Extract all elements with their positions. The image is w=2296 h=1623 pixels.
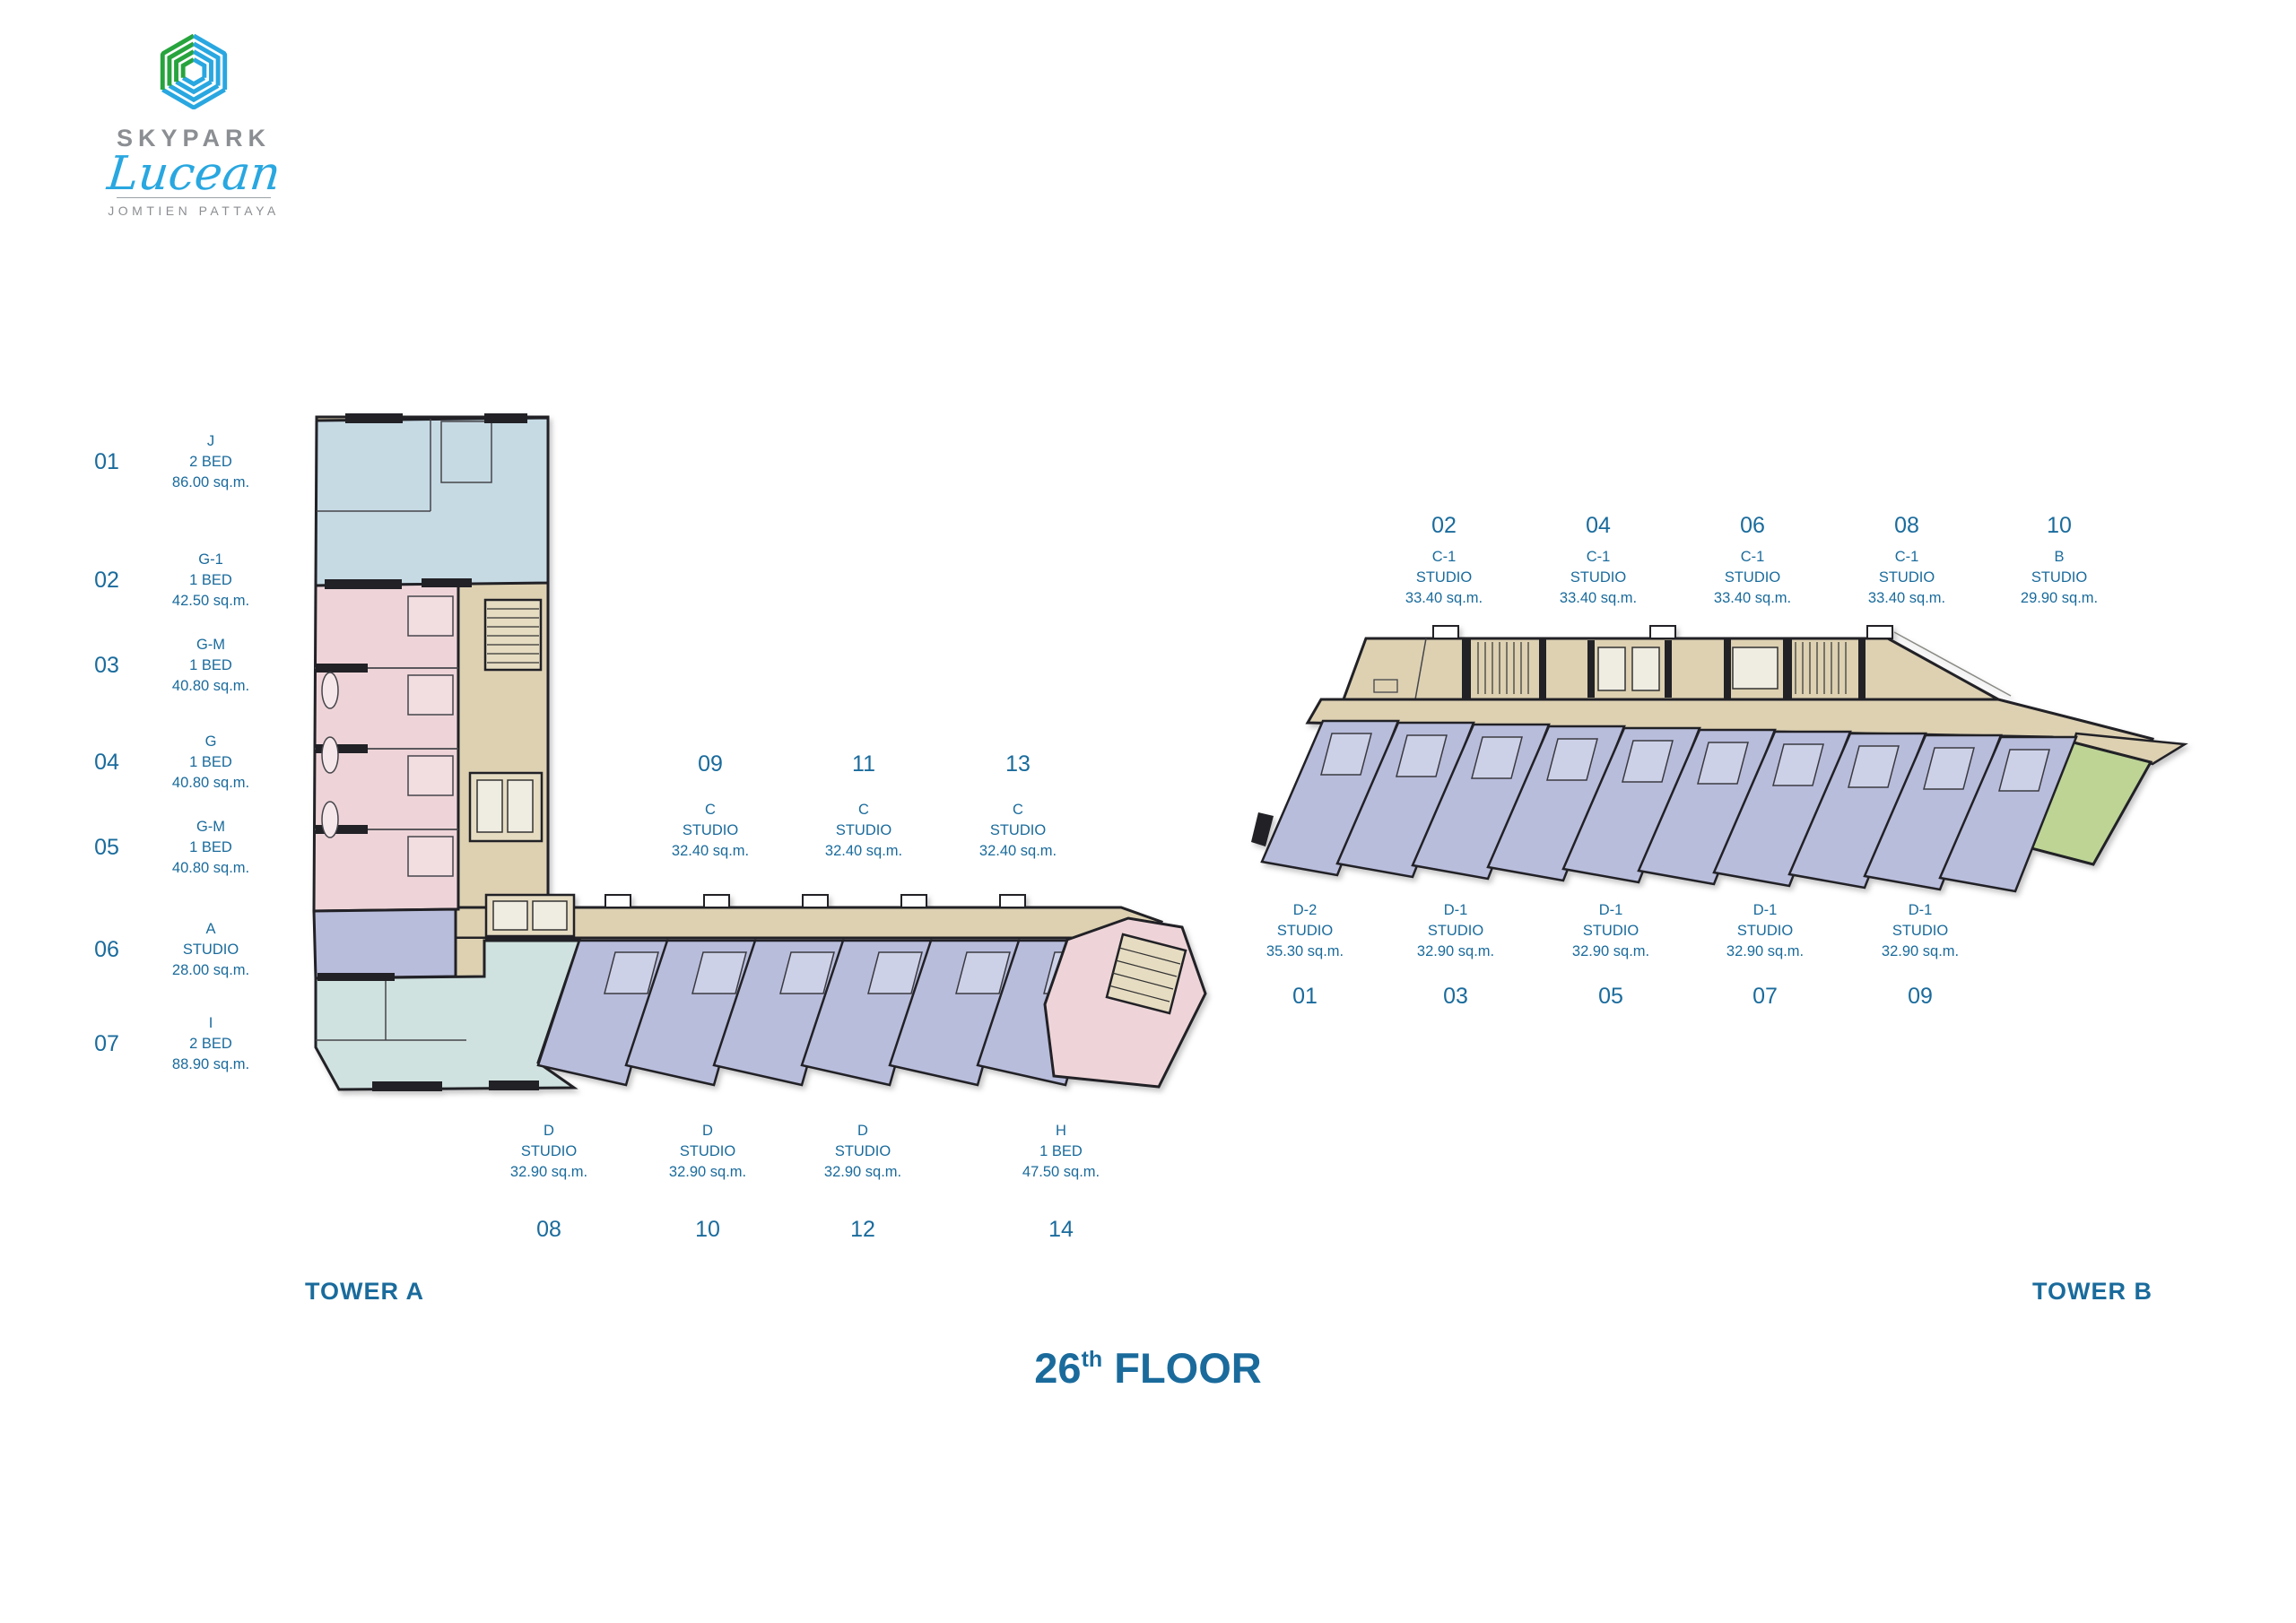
unit-number: 09: [634, 751, 787, 777]
unit-area: 42.50 sq.m.: [135, 591, 287, 612]
unit-type: D-1: [1689, 900, 1841, 921]
unit-type: D: [473, 1121, 625, 1141]
unit-label-14: H 1 BED 47.50 sq.m. 14: [985, 1121, 1137, 1242]
unit-layout: 1 BED: [985, 1141, 1137, 1162]
unit-number: 03: [1379, 984, 1532, 1009]
unit-layout: STUDIO: [787, 820, 940, 841]
unit-label-b07: D-1 STUDIO 32.90 sq.m. 07: [1689, 900, 1841, 1009]
unit-type: D-1: [1535, 900, 1687, 921]
unit-number: 07: [1689, 984, 1841, 1009]
unit-number: 09: [1844, 984, 1996, 1009]
unit-number: 10: [631, 1217, 784, 1242]
unit-type: H: [985, 1121, 1137, 1141]
unit-type: C-1: [1831, 547, 1983, 568]
unit-layout: 1 BED: [135, 655, 287, 676]
unit-layout: 1 BED: [135, 570, 287, 591]
unit-type: G: [135, 732, 287, 752]
unit-layout: STUDIO: [1535, 921, 1687, 942]
unit-label-13: 13 C STUDIO 32.40 sq.m.: [942, 751, 1094, 862]
unit-number: 01: [79, 449, 135, 475]
unit-area: 40.80 sq.m.: [135, 858, 287, 879]
unit-area: 32.90 sq.m.: [1379, 942, 1532, 962]
floor-number: 26: [1034, 1344, 1081, 1392]
unit-layout: STUDIO: [135, 940, 287, 960]
unit-area: 32.90 sq.m.: [1844, 942, 1996, 962]
unit-type: D: [631, 1121, 784, 1141]
unit-number: 13: [942, 751, 1094, 777]
unit-label-11: 11 C STUDIO 32.40 sq.m.: [787, 751, 940, 862]
unit-type: B: [1983, 547, 2135, 568]
unit-type: J: [135, 431, 287, 452]
unit-type: D-1: [1844, 900, 1996, 921]
unit-layout: STUDIO: [1368, 568, 1520, 588]
unit-number: 03: [79, 653, 135, 679]
unit-type: C: [634, 800, 787, 820]
unit-type: D: [787, 1121, 939, 1141]
tower-a-label: TOWER A: [305, 1278, 424, 1306]
unit-layout: 2 BED: [135, 1034, 287, 1055]
unit-layout: STUDIO: [1831, 568, 1983, 588]
skypark-logo: SKYPARK Lucean JOMTIEN PATTAYA: [108, 30, 280, 218]
unit-type: C: [787, 800, 940, 820]
legend-row-04: 04 G 1 BED 40.80 sq.m.: [79, 732, 287, 794]
unit-label-08: D STUDIO 32.90 sq.m. 08: [473, 1121, 625, 1242]
unit-number: 08: [473, 1217, 625, 1242]
unit-type: G-1: [135, 550, 287, 570]
unit-number: 01: [1229, 984, 1381, 1009]
unit-label-b05: D-1 STUDIO 32.90 sq.m. 05: [1535, 900, 1687, 1009]
unit-type: A: [135, 919, 287, 940]
unit-label-10: D STUDIO 32.90 sq.m. 10: [631, 1121, 784, 1242]
unit-type: G-M: [135, 635, 287, 655]
unit-layout: STUDIO: [473, 1141, 625, 1162]
unit-type: C-1: [1522, 547, 1674, 568]
legend-row-01: 01 J 2 BED 86.00 sq.m.: [79, 431, 287, 493]
unit-number: 08: [1831, 513, 1983, 538]
unit-label-12: D STUDIO 32.90 sq.m. 12: [787, 1121, 939, 1242]
unit-area: 47.50 sq.m.: [985, 1162, 1137, 1183]
unit-area: 29.90 sq.m.: [1983, 588, 2135, 609]
unit-area: 32.40 sq.m.: [634, 841, 787, 862]
unit-number: 05: [79, 835, 135, 861]
unit-number: 05: [1535, 984, 1687, 1009]
unit-number: 04: [1522, 513, 1674, 538]
tower-b-floorplan: [1251, 626, 2185, 891]
unit-type: D-1: [1379, 900, 1532, 921]
legend-row-02: 02 G-1 1 BED 42.50 sq.m.: [79, 550, 287, 612]
skypark-emblem-icon: [154, 30, 233, 111]
unit-number: 06: [79, 937, 135, 963]
unit-layout: STUDIO: [942, 820, 1094, 841]
unit-number: 14: [985, 1217, 1137, 1242]
tower-a-unit-06-shape: [314, 909, 456, 978]
unit-label-b04: 04 C-1 STUDIO 33.40 sq.m.: [1522, 513, 1674, 609]
balcony-tick-icon: [1433, 626, 1892, 638]
unit-area: 33.40 sq.m.: [1676, 588, 1829, 609]
tower-a-unit-01-shape: [316, 418, 548, 586]
unit-number: 04: [79, 750, 135, 776]
unit-type: G-M: [135, 817, 287, 838]
unit-type: D-2: [1229, 900, 1381, 921]
unit-area: 32.90 sq.m.: [631, 1162, 784, 1183]
unit-layout: 1 BED: [135, 838, 287, 858]
unit-number: 12: [787, 1217, 939, 1242]
unit-layout: STUDIO: [1522, 568, 1674, 588]
unit-area: 32.90 sq.m.: [1535, 942, 1687, 962]
staircase-shape: [485, 600, 541, 670]
unit-layout: 2 BED: [135, 452, 287, 473]
unit-area: 32.40 sq.m.: [942, 841, 1094, 862]
unit-number: 07: [79, 1031, 135, 1057]
unit-label-b06: 06 C-1 STUDIO 33.40 sq.m.: [1676, 513, 1829, 609]
unit-area: 28.00 sq.m.: [135, 960, 287, 981]
unit-layout: STUDIO: [631, 1141, 784, 1162]
unit-layout: STUDIO: [1229, 921, 1381, 942]
unit-area: 33.40 sq.m.: [1368, 588, 1520, 609]
unit-number: 02: [1368, 513, 1520, 538]
unit-label-b03: D-1 STUDIO 32.90 sq.m. 03: [1379, 900, 1532, 1009]
unit-area: 33.40 sq.m.: [1831, 588, 1983, 609]
legend-row-06: 06 A STUDIO 28.00 sq.m.: [79, 919, 287, 981]
legend-row-03: 03 G-M 1 BED 40.80 sq.m.: [79, 635, 287, 697]
unit-layout: STUDIO: [1983, 568, 2135, 588]
floor-title: 26th FLOOR: [897, 1343, 1399, 1393]
unit-label-b09: D-1 STUDIO 32.90 sq.m. 09: [1844, 900, 1996, 1009]
unit-area: 35.30 sq.m.: [1229, 942, 1381, 962]
unit-number: 11: [787, 751, 940, 777]
floor-ordinal: th: [1082, 1347, 1103, 1372]
unit-type: C-1: [1676, 547, 1829, 568]
unit-layout: STUDIO: [787, 1141, 939, 1162]
legend-row-05: 05 G-M 1 BED 40.80 sq.m.: [79, 817, 287, 879]
unit-area: 88.90 sq.m.: [135, 1055, 287, 1075]
unit-number: 02: [79, 568, 135, 594]
legend-row-07: 07 I 2 BED 88.90 sq.m.: [79, 1013, 287, 1075]
logo-project-name: Lucean: [105, 149, 283, 199]
unit-type: C: [942, 800, 1094, 820]
unit-label-b02: 02 C-1 STUDIO 33.40 sq.m.: [1368, 513, 1520, 609]
tower-b-label: TOWER B: [2032, 1278, 2152, 1306]
unit-label-b10: 10 B STUDIO 29.90 sq.m.: [1983, 513, 2135, 609]
unit-area: 40.80 sq.m.: [135, 676, 287, 697]
unit-layout: STUDIO: [1379, 921, 1532, 942]
unit-label-b08: 08 C-1 STUDIO 33.40 sq.m.: [1831, 513, 1983, 609]
unit-area: 33.40 sq.m.: [1522, 588, 1674, 609]
unit-label-09: 09 C STUDIO 32.40 sq.m.: [634, 751, 787, 862]
logo-location-text: JOMTIEN PATTAYA: [108, 204, 280, 218]
unit-area: 40.80 sq.m.: [135, 773, 287, 794]
unit-area: 32.90 sq.m.: [1689, 942, 1841, 962]
unit-number: 10: [1983, 513, 2135, 538]
unit-layout: 1 BED: [135, 752, 287, 773]
unit-area: 86.00 sq.m.: [135, 473, 287, 493]
floorplan-page: SKYPARK Lucean JOMTIEN PATTAYA 01 J 2 BE…: [0, 0, 2296, 1623]
unit-area: 32.40 sq.m.: [787, 841, 940, 862]
unit-area: 32.90 sq.m.: [787, 1162, 939, 1183]
unit-layout: STUDIO: [1844, 921, 1996, 942]
unit-type: I: [135, 1013, 287, 1034]
unit-number: 06: [1676, 513, 1829, 538]
balcony-tick-icon: [605, 895, 1025, 907]
unit-label-b01: D-2 STUDIO 35.30 sq.m. 01: [1229, 900, 1381, 1009]
floor-word: FLOOR: [1114, 1344, 1261, 1392]
unit-area: 32.90 sq.m.: [473, 1162, 625, 1183]
unit-layout: STUDIO: [1676, 568, 1829, 588]
unit-layout: STUDIO: [1689, 921, 1841, 942]
unit-type: C-1: [1368, 547, 1520, 568]
unit-layout: STUDIO: [634, 820, 787, 841]
tower-a-corridor-link-shape: [456, 938, 486, 978]
